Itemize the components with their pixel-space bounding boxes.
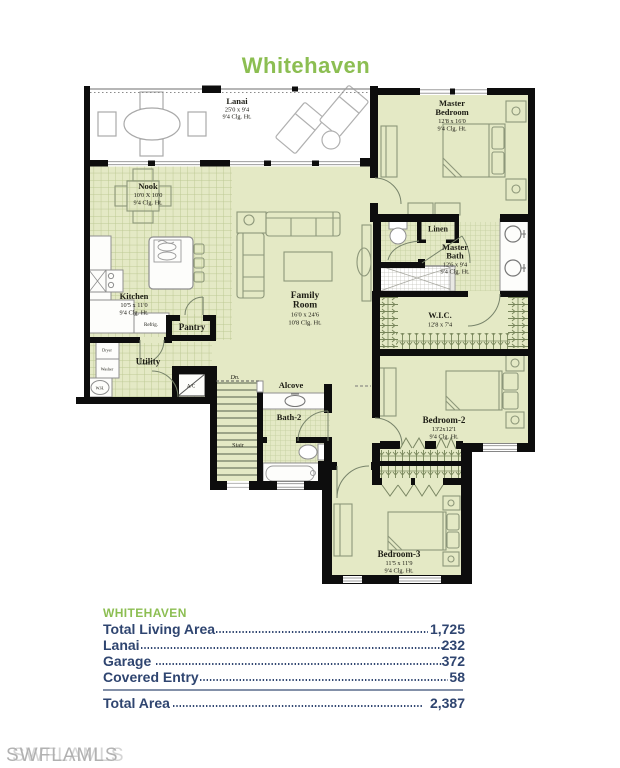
svg-text:W.I.C.: W.I.C. xyxy=(428,310,452,320)
svg-text:Kitchen: Kitchen xyxy=(120,291,149,301)
svg-text:12'8 x 7'4: 12'8 x 7'4 xyxy=(428,322,453,329)
svg-text:9'4 Clg. Ht.: 9'4 Clg. Ht. xyxy=(440,269,470,276)
svg-text:Bedroom-2: Bedroom-2 xyxy=(423,415,466,425)
svg-text:A/C: A/C xyxy=(187,385,196,390)
svg-text:12'6 x 9'4: 12'6 x 9'4 xyxy=(443,262,468,269)
svg-text:372: 372 xyxy=(442,653,466,669)
svg-text:2,387: 2,387 xyxy=(430,695,465,711)
svg-text:Dn.: Dn. xyxy=(229,374,239,381)
svg-text:10'0 X 10'0: 10'0 X 10'0 xyxy=(134,192,163,199)
svg-text:9'4 Clg. Ht.: 9'4 Clg. Ht. xyxy=(222,114,252,121)
svg-text:Lanai: Lanai xyxy=(226,96,248,106)
svg-text:1,725: 1,725 xyxy=(430,621,465,637)
svg-text:Bath-2: Bath-2 xyxy=(277,412,302,422)
svg-text:9'4 Clg. Ht.: 9'4 Clg. Ht. xyxy=(429,434,459,441)
svg-text:Room: Room xyxy=(293,301,317,311)
svg-text:Family: Family xyxy=(291,291,320,301)
svg-text:9'4 Clg. Ht.: 9'4 Clg. Ht. xyxy=(119,310,149,317)
svg-text:Refrig.: Refrig. xyxy=(144,323,158,328)
svg-text:12'8 x 16'0: 12'8 x 16'0 xyxy=(438,118,465,125)
svg-text:9'4 Clg. Ht.: 9'4 Clg. Ht. xyxy=(133,200,163,207)
svg-text:9'4 Clg. Ht.: 9'4 Clg. Ht. xyxy=(437,126,467,133)
svg-text:WHITEHAVEN: WHITEHAVEN xyxy=(103,606,187,620)
svg-text:Bedroom-3: Bedroom-3 xyxy=(378,549,421,559)
svg-text:Total Living Area: Total Living Area xyxy=(103,621,215,637)
svg-text:25'0 x 9'4: 25'0 x 9'4 xyxy=(225,107,250,114)
svg-text:9'4 Clg. Ht.: 9'4 Clg. Ht. xyxy=(384,568,414,575)
svg-text:Stair: Stair xyxy=(232,442,244,449)
svg-text:Alcove: Alcove xyxy=(279,380,304,390)
svg-text:SWFLAMLS: SWFLAMLS xyxy=(12,745,125,766)
svg-text:11'5 x 11'9: 11'5 x 11'9 xyxy=(386,560,413,567)
svg-text:10'8 Clg. Ht.: 10'8 Clg. Ht. xyxy=(288,320,322,327)
svg-text:Dryer: Dryer xyxy=(102,348,112,353)
svg-text:10'5 x 11'0: 10'5 x 11'0 xyxy=(120,302,147,309)
svg-text:Linen: Linen xyxy=(428,225,449,234)
svg-text:W.H.: W.H. xyxy=(96,386,105,391)
svg-text:Lanai: Lanai xyxy=(103,637,140,653)
svg-text:Utility: Utility xyxy=(136,357,161,367)
svg-text:Bedroom: Bedroom xyxy=(435,107,468,117)
svg-text:Bath: Bath xyxy=(446,251,464,261)
svg-text:Covered Entry: Covered Entry xyxy=(103,669,199,685)
svg-text:Pantry: Pantry xyxy=(179,322,206,332)
svg-text:13'2x12'1: 13'2x12'1 xyxy=(432,426,456,433)
svg-text:Nook: Nook xyxy=(138,181,158,191)
svg-text:58: 58 xyxy=(449,669,465,685)
svg-text:Total Area: Total Area xyxy=(103,695,170,711)
svg-text:232: 232 xyxy=(442,637,466,653)
svg-text:Washer: Washer xyxy=(101,367,114,372)
svg-text:Garage: Garage xyxy=(103,653,151,669)
svg-text:16'0 x 24'6: 16'0 x 24'6 xyxy=(291,312,320,319)
svg-text:Whitehaven: Whitehaven xyxy=(242,53,370,78)
